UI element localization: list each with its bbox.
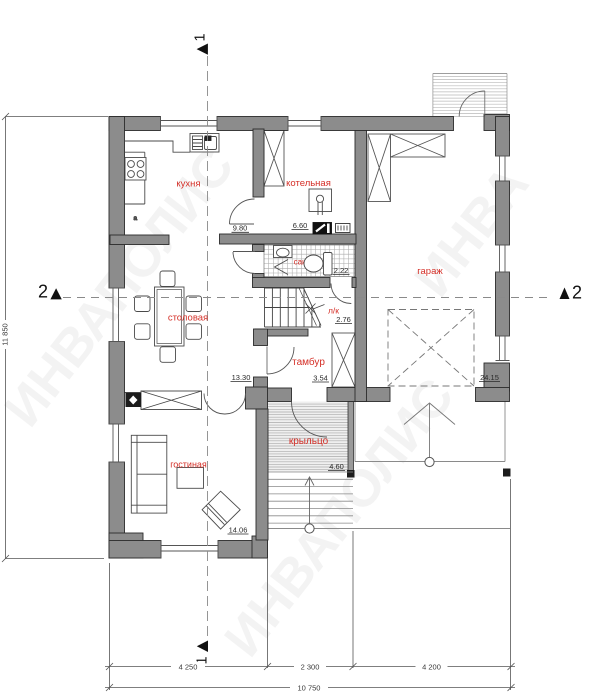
svg-text:14.06: 14.06 (229, 526, 248, 535)
svg-text:4 200: 4 200 (422, 662, 441, 671)
svg-text:10 750: 10 750 (298, 683, 321, 692)
svg-text:3.54: 3.54 (313, 374, 328, 383)
svg-text:13.30: 13.30 (232, 373, 251, 382)
svg-text:кухня: кухня (176, 179, 200, 190)
svg-text:9.80: 9.80 (233, 224, 248, 233)
svg-text:л/к: л/к (328, 306, 339, 316)
svg-text:крыльцо: крыльцо (289, 436, 329, 447)
svg-text:4.60: 4.60 (329, 462, 344, 471)
svg-text:2: 2 (572, 283, 582, 303)
svg-text:2.22: 2.22 (334, 266, 349, 275)
svg-text:4 250: 4 250 (179, 662, 198, 671)
svg-text:2: 2 (38, 282, 48, 302)
svg-text:2 300: 2 300 (301, 662, 320, 671)
svg-text:гостиная: гостиная (170, 460, 207, 470)
svg-text:гараж: гараж (417, 266, 443, 277)
svg-text:11 850: 11 850 (1, 323, 10, 345)
svg-text:6.60: 6.60 (293, 221, 308, 230)
svg-text:котельная: котельная (286, 178, 331, 189)
svg-text:тамбур: тамбур (292, 356, 325, 368)
svg-text:столовая: столовая (168, 313, 208, 324)
svg-text:2.76: 2.76 (336, 315, 351, 324)
svg-text:1: 1 (193, 33, 209, 41)
svg-text:a: a (134, 215, 138, 222)
svg-text:24.15: 24.15 (480, 373, 499, 382)
